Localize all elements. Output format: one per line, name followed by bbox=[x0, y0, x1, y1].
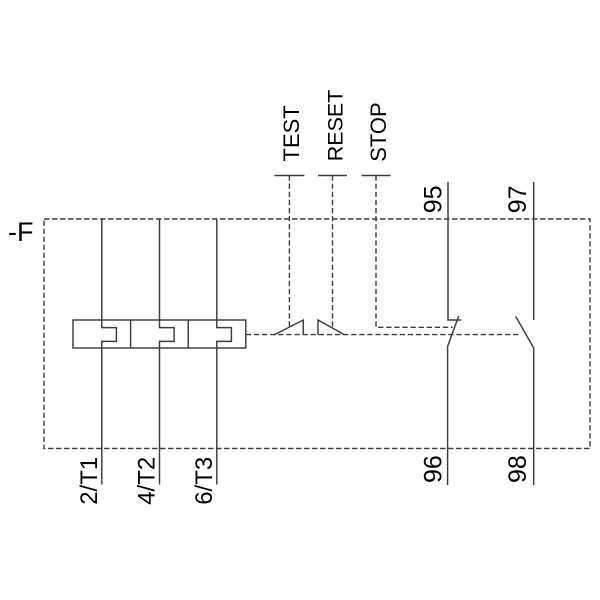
svg-text:2/T1: 2/T1 bbox=[76, 457, 103, 505]
svg-text:4/T2: 4/T2 bbox=[134, 457, 161, 505]
svg-text:6/T3: 6/T3 bbox=[191, 457, 218, 505]
svg-text:96: 96 bbox=[420, 455, 448, 483]
svg-text:STOP: STOP bbox=[366, 102, 391, 162]
svg-text:98: 98 bbox=[504, 455, 532, 483]
svg-text:RESET: RESET bbox=[324, 90, 348, 162]
svg-text:97: 97 bbox=[504, 185, 532, 213]
svg-text:-F: -F bbox=[8, 217, 33, 247]
svg-text:TEST: TEST bbox=[279, 105, 304, 161]
svg-text:95: 95 bbox=[420, 185, 448, 213]
